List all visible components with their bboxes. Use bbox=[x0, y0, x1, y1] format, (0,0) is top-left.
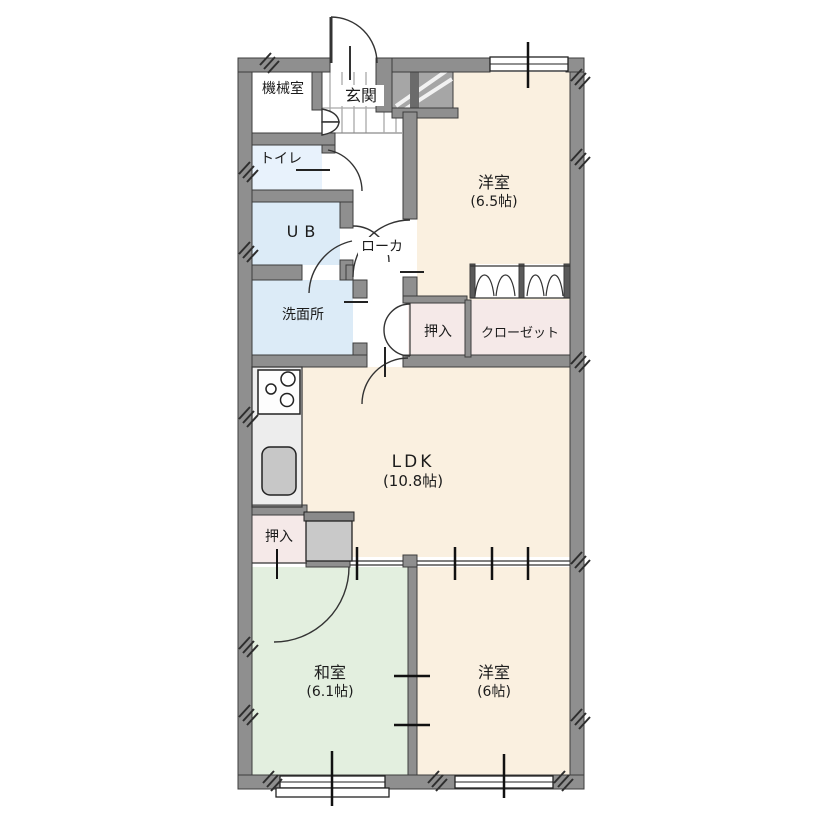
floor-plan-canvas: 機械室 玄関 トイレ UB ローカ 洗面所 洋室 (6.5帖) 押入 クローゼッ… bbox=[0, 0, 825, 825]
wall-under-washroom bbox=[252, 355, 367, 367]
wall-under-closets bbox=[403, 355, 570, 367]
wall-room-partition bbox=[408, 567, 417, 775]
closet-post-3 bbox=[564, 264, 570, 298]
wall-oshiire-upper-top bbox=[403, 296, 467, 303]
appliance-box bbox=[304, 512, 354, 561]
closet-post-2 bbox=[519, 264, 524, 298]
western-room-2-label: 洋室 bbox=[478, 663, 510, 682]
unit-bath-label: UB bbox=[287, 222, 322, 241]
oshiire-upper-label: 押入 bbox=[424, 324, 452, 340]
oshiire-lower-label: 押入 bbox=[265, 529, 293, 545]
wall-right bbox=[570, 58, 584, 789]
washroom-label: 洗面所 bbox=[282, 307, 324, 323]
stove-icon bbox=[258, 370, 300, 414]
wall-under-toilet bbox=[252, 190, 353, 202]
entrance-label: 玄関 bbox=[345, 86, 377, 105]
wall-top-mid bbox=[378, 58, 490, 72]
wall-stair-step bbox=[392, 108, 458, 118]
wall-washroom-right-upper bbox=[353, 280, 367, 298]
closet-post-1 bbox=[470, 264, 475, 298]
western-room-1-label: 洋室 bbox=[478, 173, 510, 192]
ldk-label: LDK bbox=[392, 452, 435, 472]
ldk-size: (10.8帖) bbox=[383, 472, 443, 490]
entrance-door bbox=[331, 17, 377, 80]
wall-closet-divider bbox=[465, 300, 471, 357]
closet-label: クローゼット bbox=[481, 326, 559, 341]
sink-icon bbox=[262, 447, 296, 495]
wall-under-ub-left bbox=[252, 265, 302, 280]
japanese-room-label: 和室 bbox=[314, 663, 346, 682]
western-room-2-size: (6帖) bbox=[477, 684, 511, 700]
japanese-room-size: (6.1帖) bbox=[306, 684, 353, 700]
entrance-label-group: 玄関 bbox=[338, 85, 384, 106]
corridor-label-group: ローカ bbox=[358, 237, 406, 255]
western-room-1-size: (6.5帖) bbox=[470, 194, 517, 210]
machine-room-label: 機械室 bbox=[262, 80, 304, 97]
floor-plan-drawing: 機械室 玄関 トイレ UB ローカ 洗面所 洋室 (6.5帖) 押入 クローゼッ… bbox=[0, 0, 825, 825]
corridor-label: ローカ bbox=[361, 239, 403, 255]
wall-ub-right-upper bbox=[340, 202, 353, 228]
wall-jog-ldk bbox=[403, 555, 417, 567]
wall-machineroom-divider bbox=[312, 72, 322, 110]
wall-top-left bbox=[238, 58, 330, 72]
wall-corridor-west1 bbox=[403, 112, 417, 219]
toilet-label: トイレ bbox=[260, 151, 302, 167]
wall-under-ub-right bbox=[346, 265, 353, 280]
